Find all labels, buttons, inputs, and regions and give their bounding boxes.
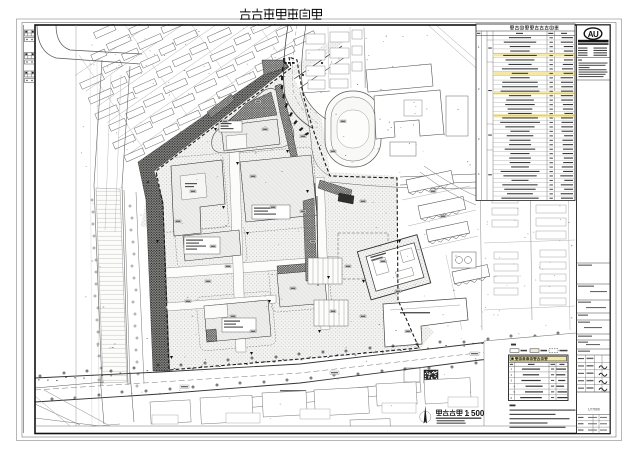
svg-text:500: 500: [471, 409, 485, 418]
svg-text:AU: AU: [588, 30, 599, 39]
svg-text:LY7000: LY7000: [588, 408, 600, 412]
svg-text::: :: [468, 411, 470, 418]
